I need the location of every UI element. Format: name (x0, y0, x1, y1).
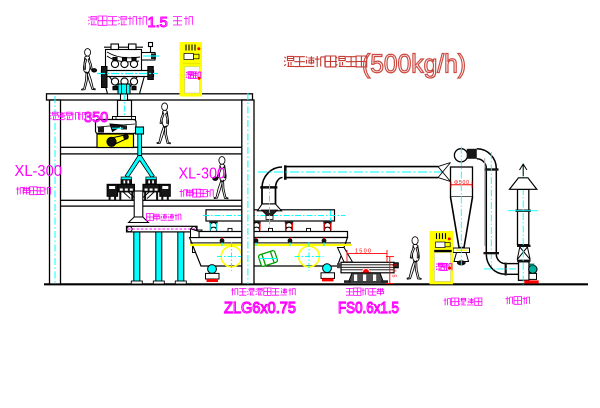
svg-text:ZLG6x0.75: ZLG6x0.75 (224, 300, 296, 317)
svg-text:350: 350 (84, 110, 108, 126)
svg-text:(500kg/h): (500kg/h) (362, 49, 466, 79)
svg-text:XL-300: XL-300 (179, 166, 226, 183)
svg-text:545: 545 (390, 264, 396, 278)
svg-text:FS0.6x1.5: FS0.6x1.5 (338, 300, 399, 317)
svg-text:1500: 1500 (355, 248, 371, 254)
svg-text:1.5: 1.5 (148, 15, 168, 31)
svg-text:XL-300: XL-300 (15, 163, 63, 180)
